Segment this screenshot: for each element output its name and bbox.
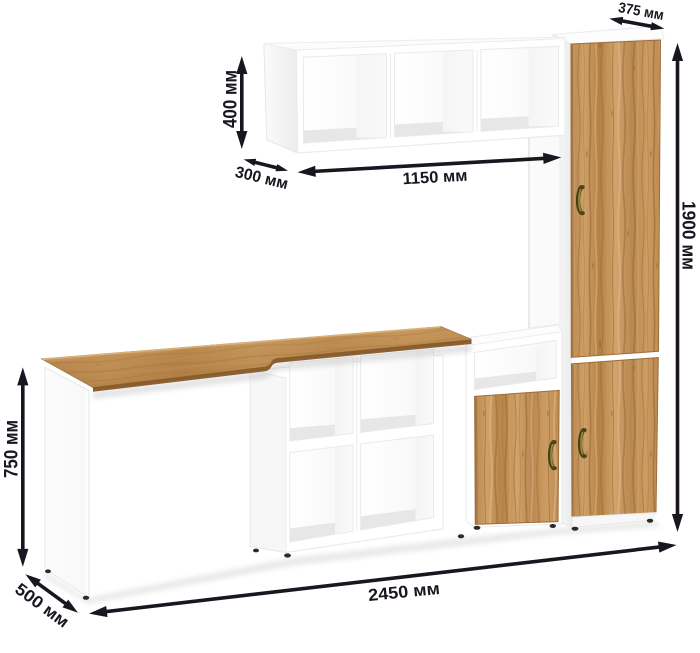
svg-text:400 мм: 400 мм — [220, 70, 241, 128]
svg-text:750 мм: 750 мм — [0, 420, 22, 478]
svg-text:1150 мм: 1150 мм — [402, 167, 468, 189]
svg-text:1900 мм: 1900 мм — [679, 201, 699, 270]
